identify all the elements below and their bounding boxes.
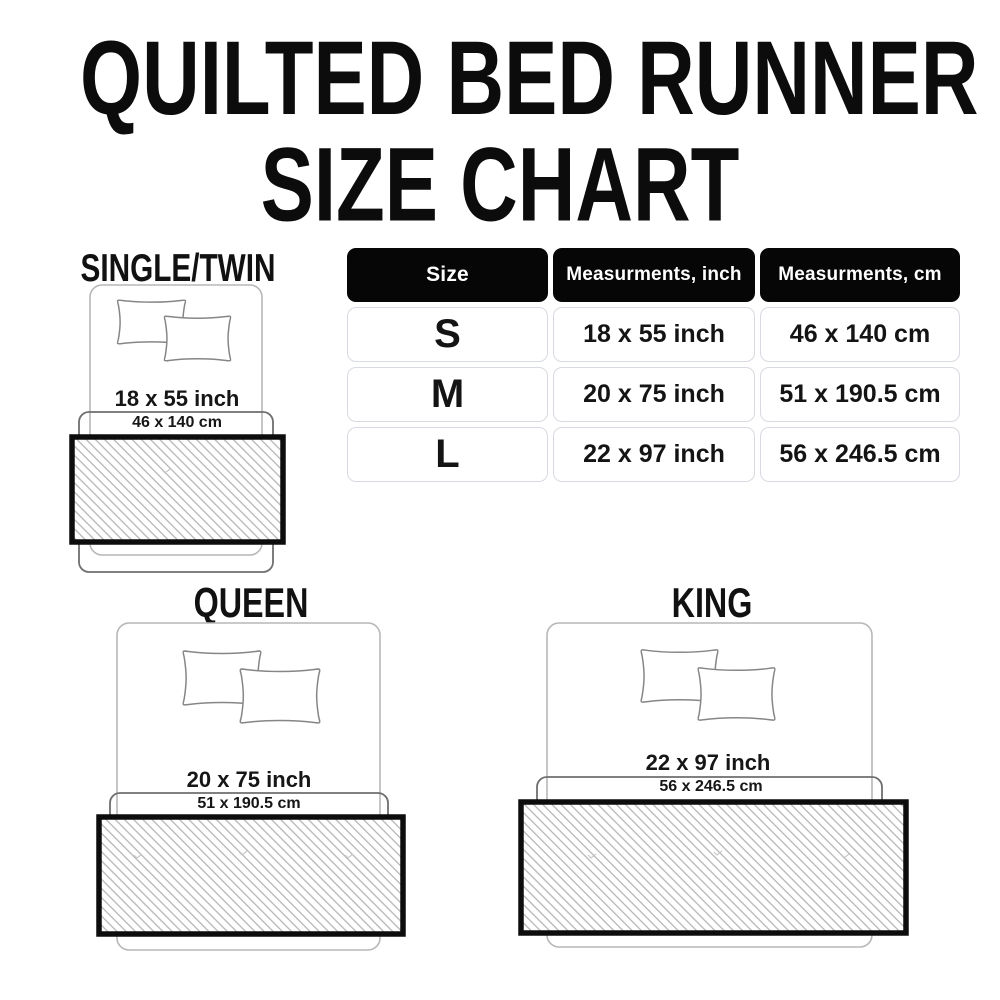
cell-size-l: L	[347, 427, 548, 482]
queen-runner-hatch	[99, 817, 403, 934]
king-pillow-right-icon	[698, 668, 775, 720]
cell-cm-l: 56 x 246.5 cm	[760, 427, 960, 482]
page-title-line1: QUILTED BED RUNNER	[80, 26, 920, 133]
single-pillow-right-icon	[164, 316, 230, 361]
queen-inch-dimension: 20 x 75 inch	[187, 767, 312, 793]
cell-size-m: M	[347, 367, 548, 422]
king-cm-dimension: 56 x 246.5 cm	[659, 778, 762, 796]
size-chart-page: QUILTED BED RUNNER SIZE CHART SINGLE/TWI…	[0, 0, 1000, 1000]
queen-pillow-right-icon	[240, 669, 319, 723]
cell-inch-m: 20 x 75 inch	[553, 367, 755, 422]
king-runner-hatch	[521, 802, 906, 933]
king-inch-dimension: 22 x 97 inch	[646, 750, 771, 776]
size-table: Size Measurments, inch Measurments, cm S…	[347, 248, 960, 482]
single-runner-hatch	[72, 437, 283, 542]
column-header-size: Size	[347, 248, 548, 302]
cell-cm-m: 51 x 190.5 cm	[760, 367, 960, 422]
cell-size-s: S	[347, 307, 548, 362]
single-inch-dimension: 18 x 55 inch	[115, 386, 240, 412]
column-header-inch: Measurments, inch	[553, 248, 755, 302]
page-title-line2: SIZE CHART	[80, 133, 920, 240]
cell-inch-l: 22 x 97 inch	[553, 427, 755, 482]
page-title: QUILTED BED RUNNER SIZE CHART	[80, 26, 920, 239]
single-cm-dimension: 46 x 140 cm	[132, 414, 222, 432]
cell-inch-s: 18 x 55 inch	[553, 307, 755, 362]
column-header-cm: Measurments, cm	[760, 248, 960, 302]
queen-cm-dimension: 51 x 190.5 cm	[197, 795, 300, 813]
cell-cm-s: 46 x 140 cm	[760, 307, 960, 362]
